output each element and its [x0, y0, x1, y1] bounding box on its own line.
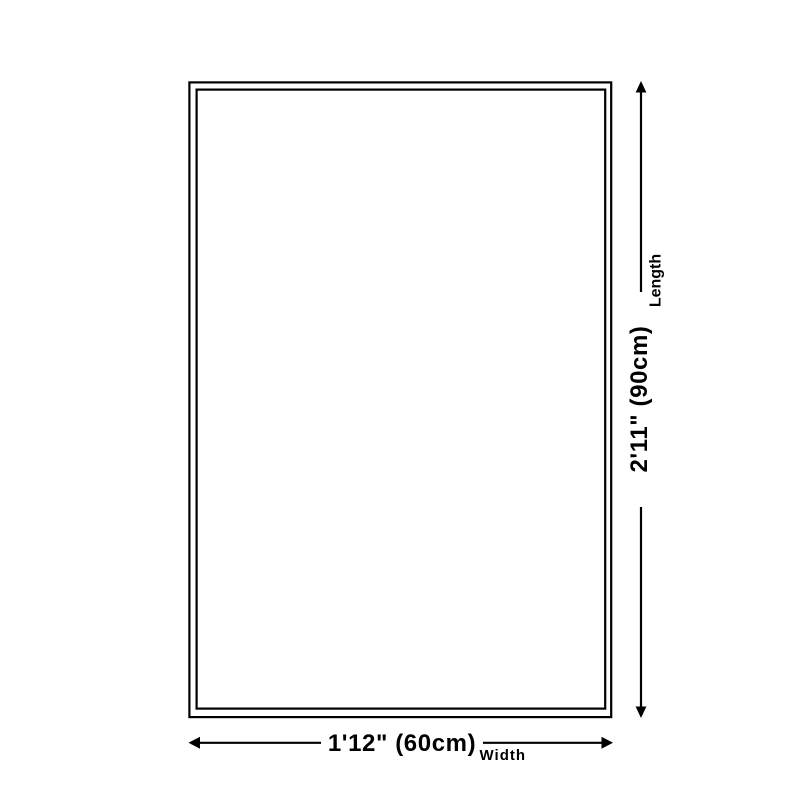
svg-text:2'11" (90cm): 2'11" (90cm): [626, 325, 653, 472]
svg-text:Length: Length: [648, 254, 665, 307]
svg-text:Width: Width: [480, 747, 527, 764]
svg-text:1'12" (60cm): 1'12" (60cm): [328, 730, 476, 757]
